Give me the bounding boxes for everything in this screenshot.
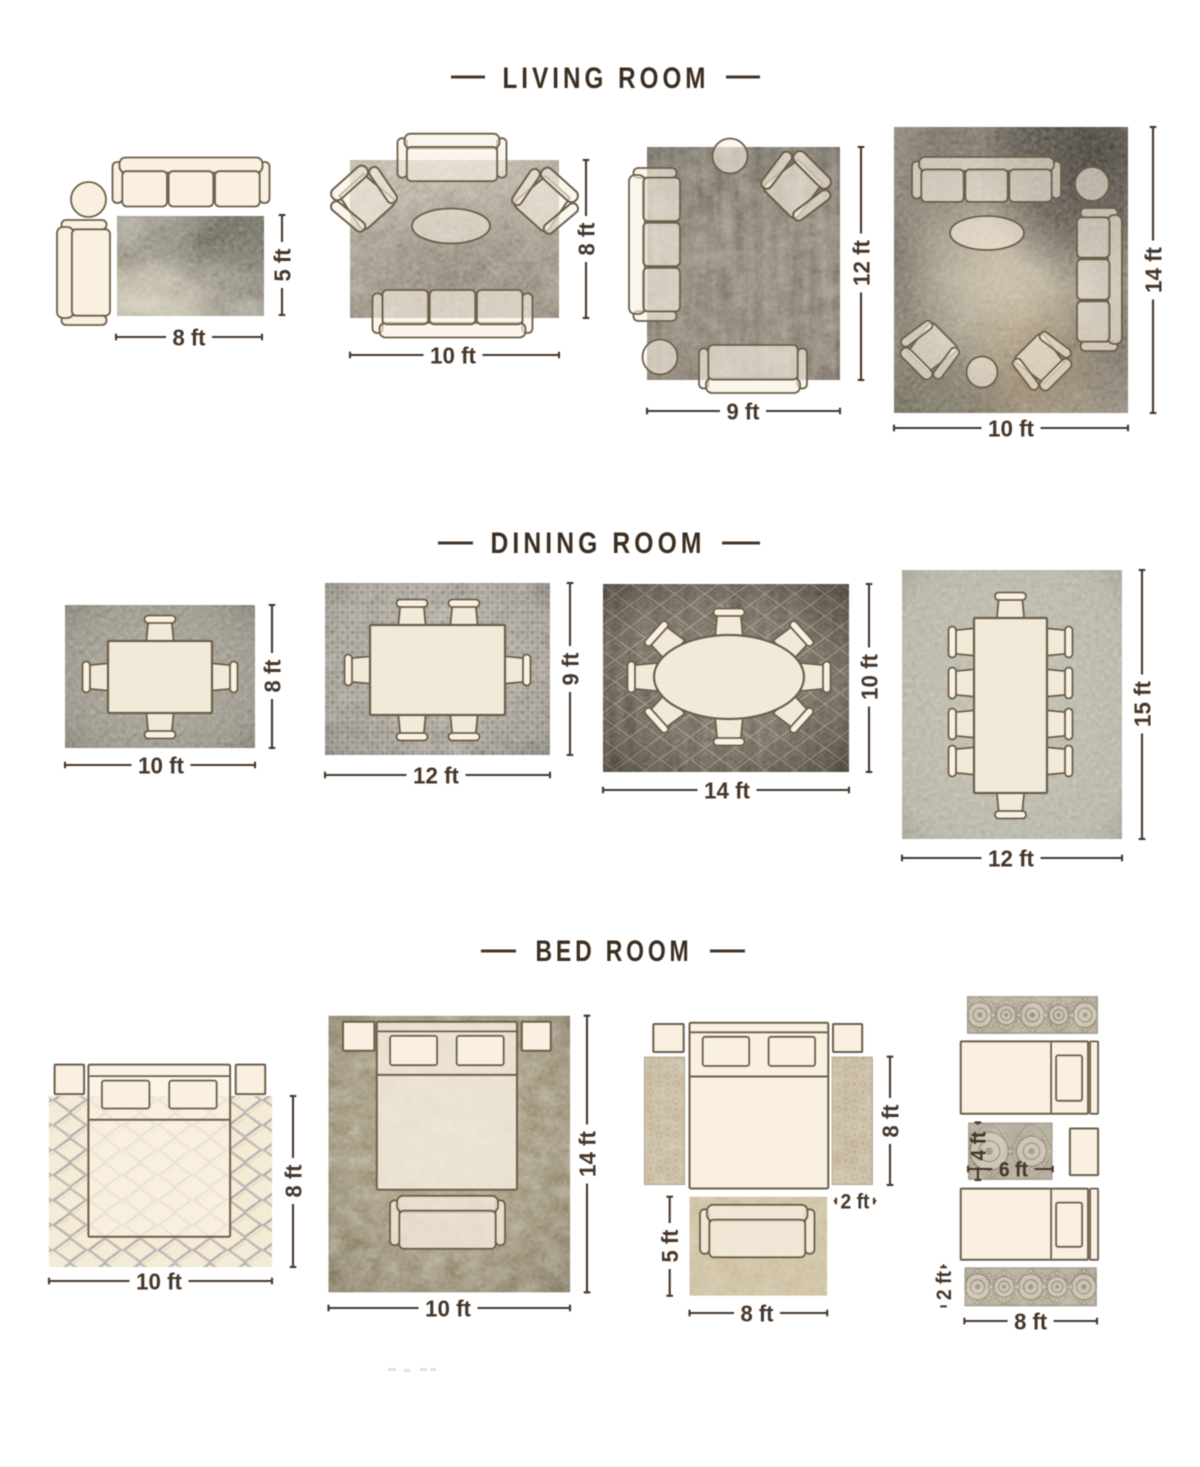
svg-text:8 ft: 8 ft xyxy=(573,222,599,255)
svg-text:8 ft: 8 ft xyxy=(280,1164,306,1197)
svg-text:2 ft: 2 ft xyxy=(841,1191,870,1214)
svg-text:9 ft: 9 ft xyxy=(727,398,760,424)
svg-text:6 ft: 6 ft xyxy=(999,1159,1028,1182)
svg-text:14 ft: 14 ft xyxy=(574,1131,600,1177)
svg-text:5 ft: 5 ft xyxy=(657,1229,683,1262)
svg-text:10 ft: 10 ft xyxy=(988,415,1034,441)
svg-text:LIVING ROOM: LIVING ROOM xyxy=(503,62,710,95)
svg-text:10 ft: 10 ft xyxy=(138,752,184,778)
svg-text:DINING ROOM: DINING ROOM xyxy=(491,527,706,560)
svg-text:BED ROOM: BED ROOM xyxy=(536,935,693,968)
svg-text:10 ft: 10 ft xyxy=(136,1268,182,1294)
svg-text:8 ft: 8 ft xyxy=(741,1300,774,1326)
svg-text:12 ft: 12 ft xyxy=(848,240,874,286)
svg-text:5 ft: 5 ft xyxy=(269,248,295,281)
svg-text:2 ft: 2 ft xyxy=(933,1271,956,1300)
svg-text:8 ft: 8 ft xyxy=(173,324,206,350)
svg-text:14 ft: 14 ft xyxy=(704,777,750,803)
svg-text:10 ft: 10 ft xyxy=(856,654,882,700)
svg-text:12 ft: 12 ft xyxy=(988,845,1034,871)
svg-text:10 ft: 10 ft xyxy=(430,342,476,368)
svg-text:14 ft: 14 ft xyxy=(1140,247,1166,293)
svg-text:9 ft: 9 ft xyxy=(557,652,583,685)
svg-text:15 ft: 15 ft xyxy=(1129,681,1155,727)
svg-text:4 ft: 4 ft xyxy=(967,1131,990,1160)
svg-text:8 ft: 8 ft xyxy=(1014,1308,1047,1334)
svg-text:8 ft: 8 ft xyxy=(877,1104,903,1137)
svg-text:8 ft: 8 ft xyxy=(259,659,285,692)
svg-text:12 ft: 12 ft xyxy=(413,762,459,788)
svg-text:10 ft: 10 ft xyxy=(425,1295,471,1321)
